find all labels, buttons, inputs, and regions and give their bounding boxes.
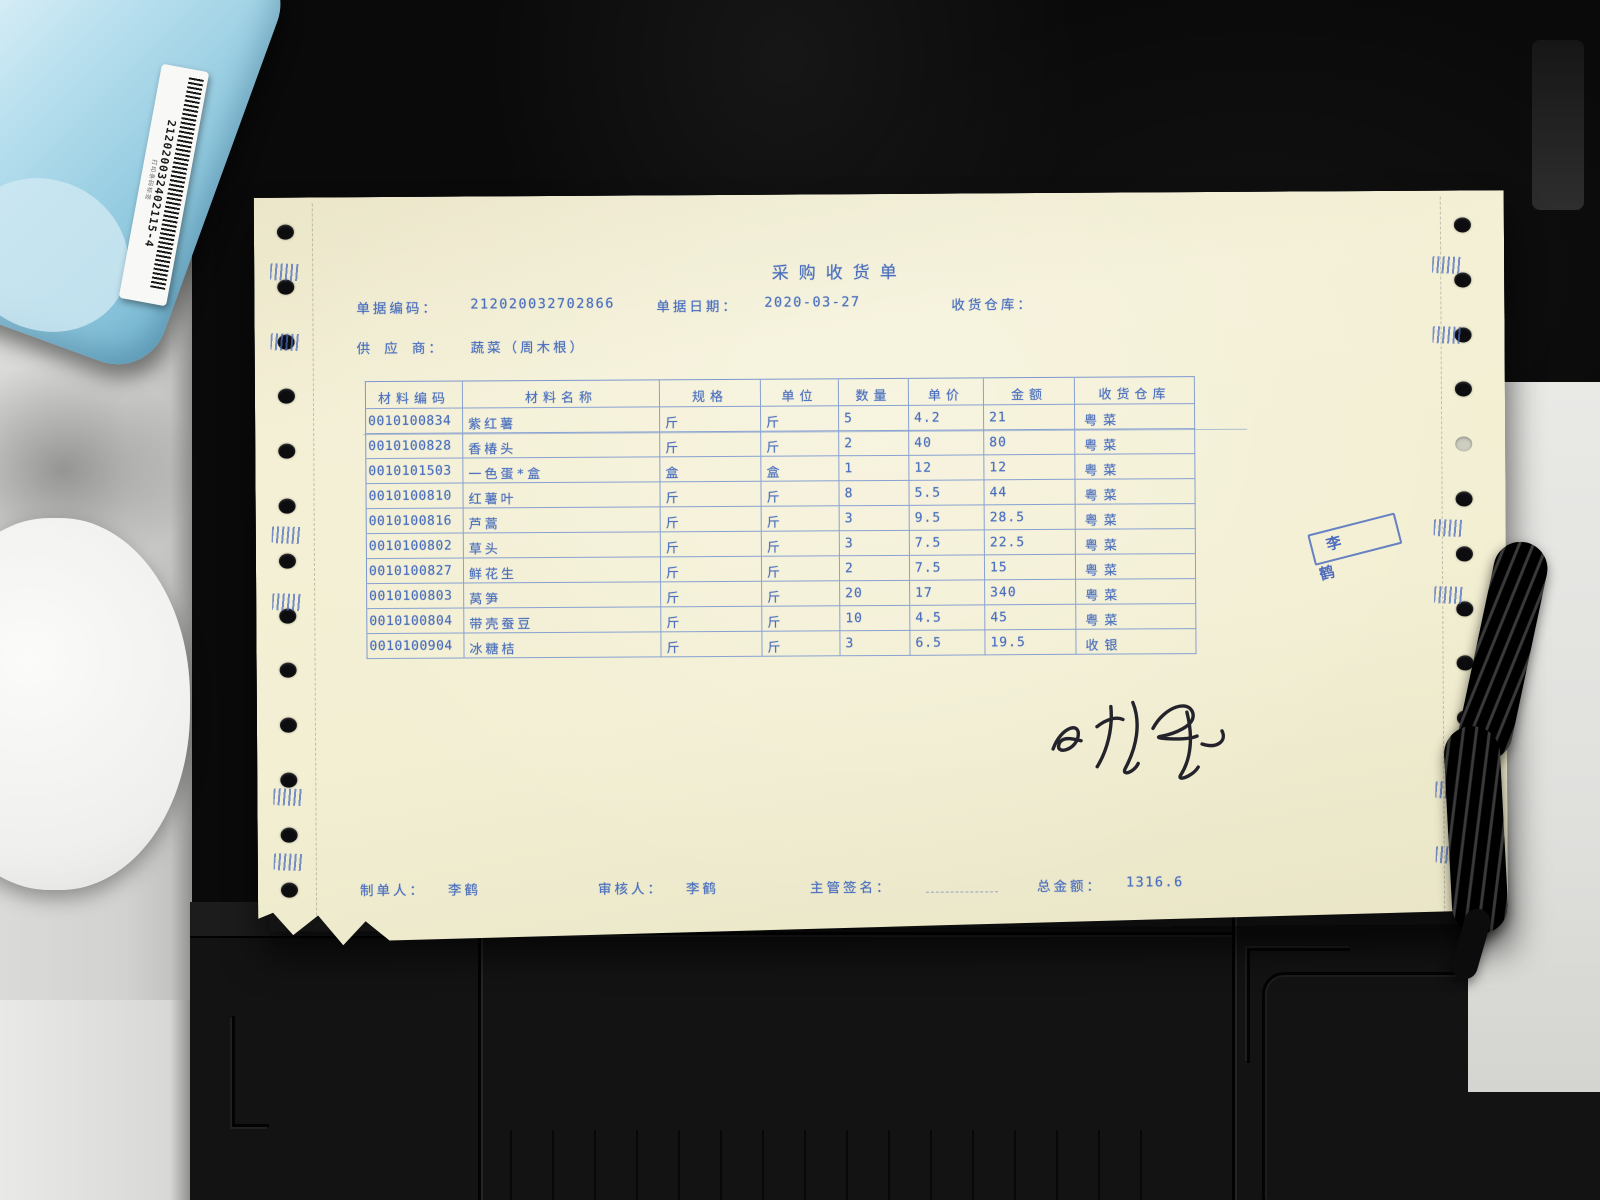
table-cell: 1 [839,456,909,481]
table-cell: 0010100810 [366,484,463,510]
table-cell: 28.5 [985,505,1076,531]
table-cell: 22.5 [985,530,1076,556]
maker-value: 李鹤 [448,878,481,898]
table-header-cell: 金额 [984,378,1075,406]
sprocket-hole [278,444,295,459]
sprocket-hole [1454,272,1471,287]
sprocket-hole [279,499,296,514]
table-cell: 40 [909,430,984,455]
sprocket-hole [280,663,297,678]
coiled-cable [1443,725,1510,936]
table-cell: 0010100816 [367,509,464,535]
table-cell: 7.5 [910,530,985,555]
table-cell: 45 [985,605,1076,631]
table-cell: 斤 [762,581,840,606]
table-cell: 0010100804 [367,609,464,635]
table-cell: 80 [984,430,1075,456]
table-header-cell: 规格 [660,380,761,408]
table-cell: 斤 [661,557,762,583]
table-cell: 4.2 [909,405,984,430]
table-cell: 斤 [762,531,840,556]
table-cell: 斤 [661,582,762,608]
table-cell: 粤菜 [1075,479,1195,505]
table-cell: 3 [840,531,910,556]
table-cell: 5.5 [909,480,984,505]
table-cell: 斤 [761,431,839,456]
desk-surface-bottom [0,1000,200,1200]
table-cell: 0010100904 [367,634,464,660]
table-cell: 21 [984,405,1075,431]
table-cell: 收银 [1076,629,1196,655]
sprocket-hole [281,882,298,897]
table-cell: 7.5 [910,555,985,580]
table-cell: 44 [984,480,1075,506]
perforation-line [312,203,317,935]
table-cell: 3 [840,631,910,656]
table-cell: 0010100802 [367,534,464,560]
tractor-feed-ink-mark [1432,256,1462,274]
table-cell: 斤 [762,631,840,656]
table-cell: 斤 [660,482,761,508]
sprocket-hole [1455,382,1472,397]
console-vents [510,1130,1160,1200]
sprocket-hole [280,773,297,788]
recv-warehouse-label: 收货仓库： [951,293,1034,314]
table-cell: 盒 [660,457,761,483]
date-value: 2020-03-27 [764,294,860,311]
table-cell: 芦蒿 [464,507,661,533]
table-cell: 粤菜 [1075,454,1195,480]
total-label: 总金额： [1037,875,1103,895]
table-cell: 3 [840,506,910,531]
table-cell: 斤 [661,532,762,558]
table-cell: 斤 [762,556,840,581]
tractor-feed-ink-mark [272,526,302,544]
supervisor-sign-line [926,891,998,892]
table-cell: 紫红薯 [463,407,660,433]
table-cell: 冰糖桔 [464,632,661,658]
table-cell: 粤菜 [1075,429,1195,455]
table-cell: 0010100803 [367,584,464,610]
table-cell: 8 [839,481,909,506]
table-cell: 粤菜 [1076,554,1196,580]
tractor-feed-ink-mark [1434,519,1464,537]
table-cell: 9.5 [910,505,985,530]
table-cell: 12 [909,455,984,480]
table-cell: 2 [840,556,910,581]
table-cell: 粤菜 [1076,529,1196,555]
table-cell: 17 [910,580,985,605]
table-cell: 0010100828 [366,434,463,460]
table-cell: 6.5 [910,630,985,655]
table-header-cell: 材料名称 [463,380,660,408]
table-cell: 20 [840,581,910,606]
sprocket-hole [1456,491,1473,506]
table-cell: 340 [985,580,1076,606]
console-groove [232,1016,269,1127]
table-cell: 2 [839,431,909,456]
table-cell: 斤 [661,632,762,658]
table-cell: 带壳蚕豆 [464,607,661,633]
table-cell: 香椿头 [463,432,660,458]
sprocket-hole [279,553,296,568]
sprocket-hole [278,389,295,404]
doc-no-value: 212020032702866 [470,296,615,313]
table-cell: 鲜花生 [464,557,661,583]
supplier-value: 蔬菜（周木根） [471,336,587,357]
photo-scene: 打印条码标签 212020032402115-4 采购收货单 单据编码： 212… [0,0,1600,1200]
tractor-feed-ink-mark [273,788,303,806]
table-cell: 斤 [661,507,762,533]
table-header-cell: 收货仓库 [1075,377,1195,405]
table-header-cell: 单价 [909,378,984,405]
table-header-cell: 材料编码 [366,382,463,410]
table-cell: 4.5 [910,605,985,630]
tractor-feed-ink-mark [272,593,302,611]
tractor-feed-ink-mark [270,333,300,351]
auditor-label: 审核人： [598,877,664,897]
printer-console [190,902,1600,1200]
table-cell: 红薯叶 [463,482,660,508]
table-cell: 粤菜 [1075,404,1195,430]
items-table: 材料编码材料名称规格单位数量单价金额收货仓库0010100834紫红薯斤斤54.… [365,376,1197,659]
table-cell: 19.5 [985,630,1076,656]
table-cell: 斤 [661,607,762,633]
doc-no-label: 单据编码： [356,297,439,318]
supplier-label: 供 应 商： [357,337,445,358]
supervisor-label: 主管签名： [810,876,893,897]
tractor-feed-ink-mark [270,263,300,281]
table-cell: 草头 [464,532,661,558]
table-cell: 斤 [761,406,839,431]
table-cell: 斤 [660,407,761,433]
table-cell: 粤菜 [1076,604,1196,630]
sprocket-hole [280,718,297,733]
date-label: 单据日期： [656,295,739,316]
table-cell: 5 [839,406,909,431]
document-title: 采购收货单 [674,257,1004,284]
table-cell: 粤菜 [1076,504,1196,530]
table-cell: 斤 [762,506,840,531]
sprocket-hole [1456,546,1473,561]
auditor-value: 李鹤 [686,877,719,897]
table-cell: 10 [840,606,910,631]
table-header-cell: 单位 [761,379,839,406]
name-stamp: 李鹤 [1307,512,1402,565]
table-cell: 盒 [761,456,839,481]
table-cell: 0010100834 [366,409,463,435]
maker-label: 制单人： [360,879,426,899]
table-cell: 15 [985,555,1076,581]
table-cell: 12 [984,455,1075,481]
table-cell: 斤 [761,481,839,506]
perforation-line [1440,197,1445,929]
table-header-cell: 数量 [839,379,909,406]
tractor-feed-ink-mark [1432,326,1462,344]
handwritten-signature [1037,686,1253,787]
cable-top [1532,40,1584,210]
receipt-paper: 采购收货单 单据编码： 212020032702866 单据日期： 2020-0… [254,190,1509,946]
console-seam [478,932,481,1200]
sprocket-hole [1454,217,1471,232]
sprocket-hole [1455,437,1472,452]
table-cell: 斤 [660,432,761,458]
table-cell: 莴笋 [464,582,661,608]
total-value: 1316.6 [1126,874,1184,890]
console-seam [1232,902,1235,1200]
sprocket-hole [277,279,294,294]
table-cell: 0010100827 [367,559,464,585]
tractor-feed-ink-mark [274,853,304,871]
table-cell: 粤菜 [1076,579,1196,605]
tractor-feed-ink-mark [1434,586,1464,604]
sprocket-hole [277,225,294,240]
table-cell: 斤 [762,606,840,631]
table-cell: 一色蛋*盒 [463,457,660,483]
table-cell: 0010101503 [366,459,463,485]
sprocket-hole [281,827,298,842]
